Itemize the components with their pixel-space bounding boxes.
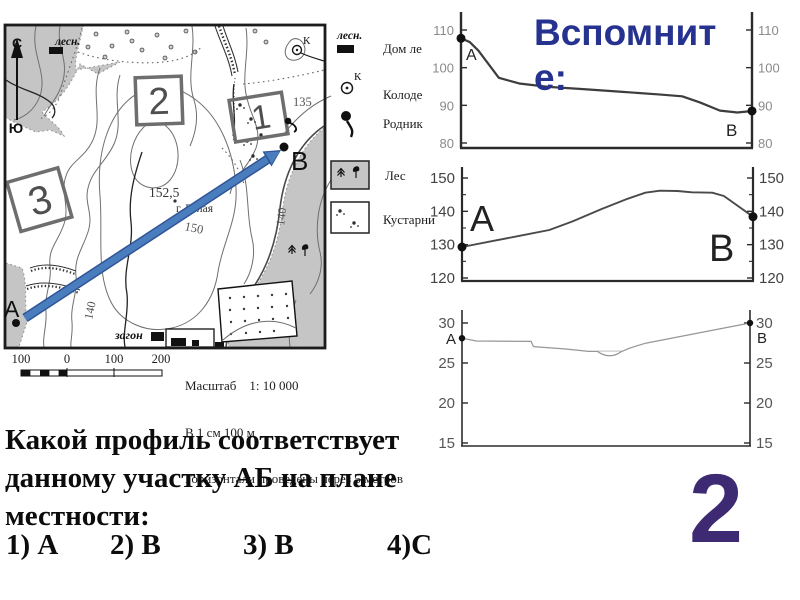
- option-3: 3) В: [243, 529, 294, 562]
- tick-label-right: 120: [759, 270, 784, 287]
- area-box-1: 1: [229, 92, 288, 142]
- option-2: 2) В: [110, 529, 161, 562]
- legend-label-forest: Лес: [385, 168, 406, 184]
- slide-number: 2: [674, 460, 758, 557]
- point-b-dot: [747, 320, 753, 326]
- tick-label-left: 25: [438, 355, 455, 372]
- compass-south-label: Ю: [9, 120, 23, 136]
- area-box-2: 2: [135, 76, 183, 125]
- map-well-letter: К: [303, 35, 311, 47]
- tick-label-right: 80: [758, 136, 772, 151]
- forester-house-icon: [337, 45, 354, 53]
- point-b-dot: [748, 106, 757, 115]
- map-elevation-135: 135: [293, 95, 312, 109]
- point-b-dot: [749, 212, 758, 221]
- tick-label-right: 110: [758, 23, 779, 38]
- tick-label-left: 150: [430, 170, 455, 187]
- tick-label-right: 20: [756, 395, 773, 412]
- tick-label-right: 150: [759, 170, 784, 187]
- tick-label-left: 20: [438, 395, 455, 412]
- map-point-b-dot: [280, 143, 289, 152]
- point-a-label: А: [470, 198, 494, 239]
- tick-label-right: 100: [758, 61, 780, 76]
- point-a-dot: [458, 243, 467, 252]
- map-contour-150-label: 150: [183, 219, 204, 237]
- elevation-profile-2: 150150140140130130120120АВ: [430, 167, 784, 287]
- river-notch: [597, 351, 621, 355]
- legend-well-letter: К: [354, 71, 362, 83]
- point-a-dot: [457, 34, 466, 43]
- point-a-label: А: [466, 47, 477, 64]
- area-3-label: 3: [24, 177, 58, 225]
- slide: 2 1 3: [0, 0, 800, 600]
- legend-label-forester-house: Дом ле: [383, 41, 422, 57]
- elevation-profile-3: 3030252520201515АВ: [438, 310, 772, 452]
- tick-label-right: 90: [758, 98, 772, 113]
- map-contour-140-right-label: 140: [273, 207, 289, 227]
- point-b-label: В: [709, 228, 734, 270]
- shrub-rings: [86, 29, 268, 60]
- legend-label-shrubs: Кустарни: [383, 212, 435, 228]
- buildings: [151, 329, 224, 347]
- tick-label-right: 25: [756, 355, 773, 372]
- legend-forester-abbr: лесн.: [336, 30, 362, 42]
- map-contour-140-left-label: 140: [81, 300, 98, 321]
- question-line-2: данному участку АБ на плане: [5, 459, 465, 497]
- area-1-label: 1: [249, 97, 274, 137]
- map-point-a-label: А: [4, 296, 20, 322]
- scale-bar: 100 0 100 200: [12, 352, 171, 377]
- tick-label-left: 120: [430, 270, 455, 287]
- map-spot-height: 152,5: [149, 185, 180, 200]
- point-b-label: В: [726, 121, 737, 140]
- area-2-label: 2: [148, 81, 171, 124]
- tick-label-right: 130: [759, 237, 784, 254]
- map-corral-label: загон: [114, 328, 143, 342]
- tick-label-right: 15: [756, 435, 773, 452]
- point-b-label: В: [757, 330, 767, 347]
- topographic-map: 2 1 3: [4, 25, 331, 377]
- legend-label-spring: Родник: [383, 116, 423, 132]
- scale-bar-label-3: 200: [152, 352, 171, 366]
- profile-curve: [462, 323, 750, 351]
- tick-label-left: 30: [438, 315, 455, 332]
- slide-title: Вспомните:: [534, 10, 732, 100]
- map-forester-abbr: лесн.: [54, 36, 80, 48]
- scale-text-line-1: Масштаб 1: 10 000: [185, 378, 403, 394]
- question-text: Какой профиль соответствует данному учас…: [5, 421, 465, 535]
- tick-label-left: 100: [432, 61, 454, 76]
- option-4: 4)С: [387, 529, 432, 562]
- scale-bar-label-2: 100: [105, 352, 124, 366]
- tick-label-left: 80: [440, 136, 454, 151]
- well-map: [293, 46, 325, 62]
- compass-north-label: С: [12, 35, 22, 51]
- garden-plot: [218, 281, 297, 342]
- tick-label-right: 140: [759, 203, 784, 220]
- well-icon: К: [342, 71, 363, 94]
- area-box-3: 3: [7, 168, 72, 232]
- forest-icon: [331, 161, 369, 189]
- forester-house-map: [49, 47, 63, 54]
- question-line-1: Какой профиль соответствует: [5, 421, 465, 459]
- tick-label-left: 110: [433, 23, 454, 38]
- tick-label-left: 90: [440, 98, 454, 113]
- legend-symbols: лесн. К: [331, 30, 369, 233]
- legend-label-well: Колоде: [383, 87, 422, 103]
- spring-icon: [341, 111, 352, 137]
- map-point-b-label: В: [291, 146, 308, 176]
- point-a-label: А: [446, 331, 456, 348]
- option-1: 1) А: [6, 529, 58, 562]
- tick-label-left: 130: [430, 237, 455, 254]
- point-a-dot: [459, 335, 465, 341]
- shrubs-icon: [331, 202, 369, 233]
- scale-bar-label-0: 100: [12, 352, 31, 366]
- scale-bar-label-1: 0: [64, 352, 70, 366]
